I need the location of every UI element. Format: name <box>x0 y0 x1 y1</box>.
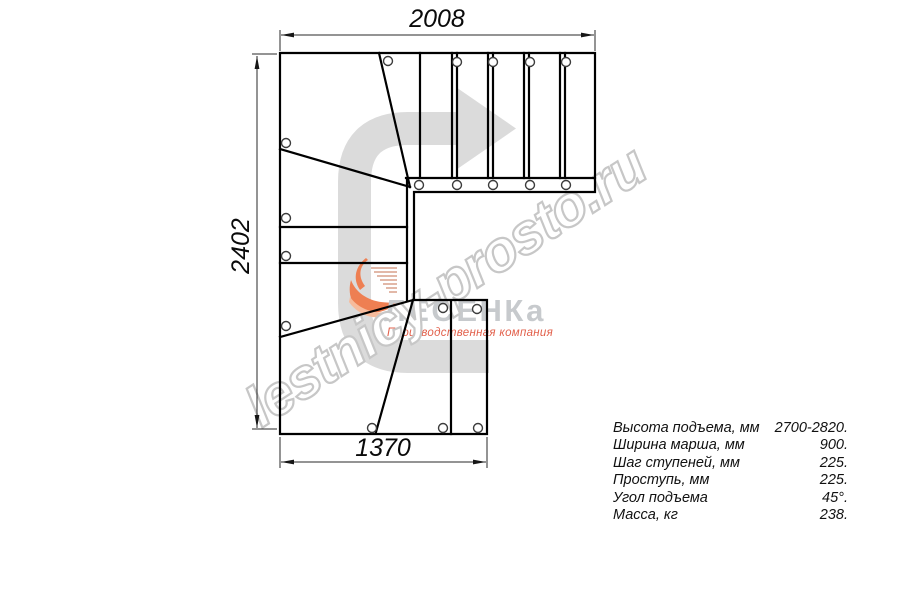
screw-hole <box>453 181 462 190</box>
screw-hole <box>282 214 291 223</box>
screw-hole <box>439 424 448 433</box>
dim-top-lines <box>280 30 595 51</box>
dim-value-left: 2402 <box>227 218 255 275</box>
spec-label: Ширина марша, мм <box>613 437 745 454</box>
dim-value-bottom: 1370 <box>355 434 411 462</box>
dim-arrow <box>281 460 294 465</box>
dim-arrow <box>473 460 486 465</box>
spec-label: Угол подъема <box>613 490 708 507</box>
screw-hole <box>526 181 535 190</box>
spec-row: Угол подъема 45°. <box>613 490 848 507</box>
spec-row: Высота подъема, мм 2700-2820. <box>613 420 848 437</box>
screw-hole <box>562 58 571 67</box>
spec-value: 2700-2820. <box>775 420 848 437</box>
screw-hole <box>562 181 571 190</box>
screw-hole <box>474 424 483 433</box>
screw-hole <box>282 139 291 148</box>
dim-arrow <box>255 56 260 69</box>
drawing-canvas: ЛЕСЕНКа Производственная компания lestni… <box>0 0 900 600</box>
screw-hole <box>489 58 498 67</box>
screw-hole <box>453 58 462 67</box>
screw-hole <box>415 181 424 190</box>
spec-table: Высота подъема, мм 2700-2820. Ширина мар… <box>613 420 848 524</box>
screw-hole <box>368 424 377 433</box>
screw-hole <box>439 304 448 313</box>
spec-row: Масса, кг 238. <box>613 507 848 524</box>
dim-arrow <box>281 33 294 38</box>
spec-value: 225. <box>820 472 848 489</box>
spec-row: Ширина марша, мм 900. <box>613 437 848 454</box>
screw-hole <box>473 305 482 314</box>
spec-value: 900. <box>820 437 848 454</box>
screw-hole <box>489 181 498 190</box>
dim-arrow <box>581 33 594 38</box>
spec-label: Масса, кг <box>613 507 678 524</box>
screw-hole <box>282 252 291 261</box>
spec-value: 225. <box>820 455 848 472</box>
screw-hole <box>384 57 393 66</box>
spec-label: Высота подъема, мм <box>613 420 760 437</box>
spec-row: Шаг ступеней, мм 225. <box>613 455 848 472</box>
spec-label: Шаг ступеней, мм <box>613 455 740 472</box>
spec-value: 45°. <box>822 490 848 507</box>
spec-value: 238. <box>820 507 848 524</box>
screw-hole <box>526 58 535 67</box>
dim-value-top: 2008 <box>408 5 465 33</box>
screw-hole <box>282 322 291 331</box>
spec-label: Проступь, мм <box>613 472 709 489</box>
spec-row: Проступь, мм 225. <box>613 472 848 489</box>
